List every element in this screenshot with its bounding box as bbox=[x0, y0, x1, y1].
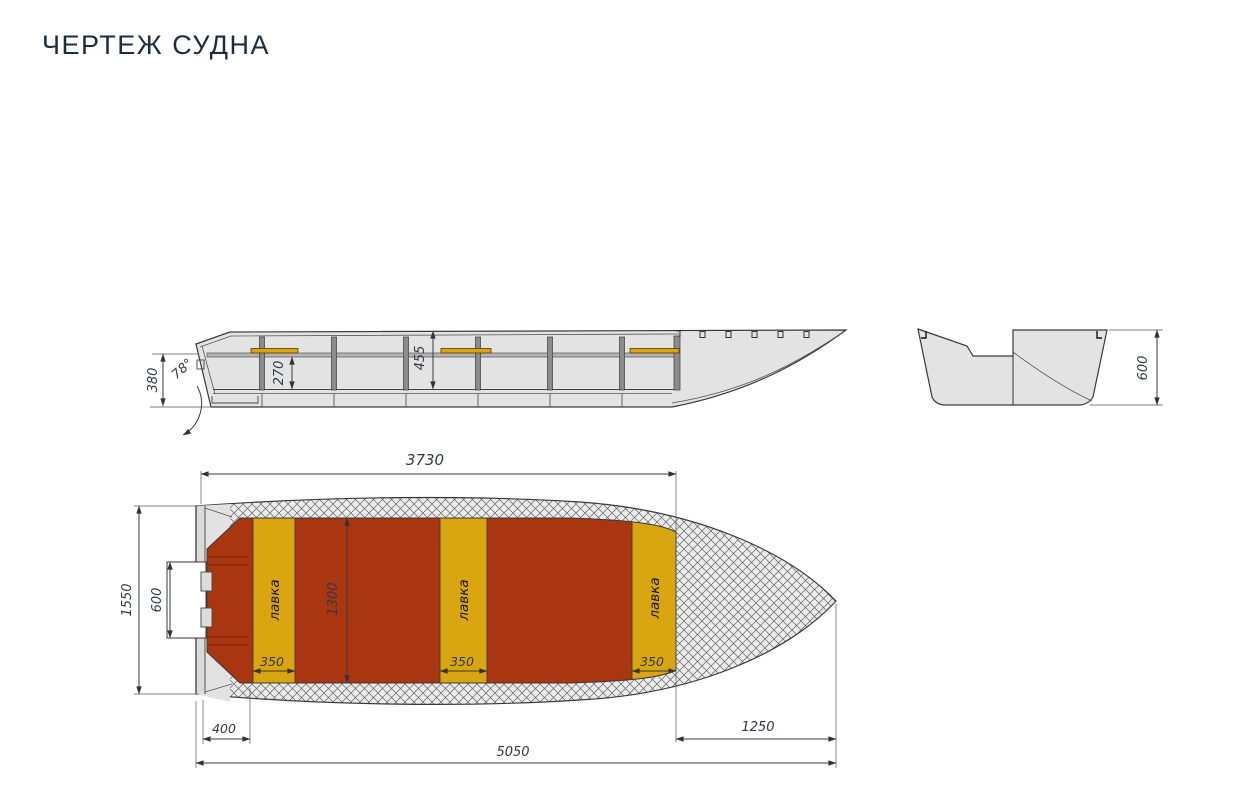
dim-transom-height: 380 bbox=[146, 368, 161, 393]
dim-floor-width: 1300 bbox=[326, 582, 341, 615]
dim-depth: 455 bbox=[413, 346, 428, 371]
side-view: 380 78° 270 455 bbox=[146, 330, 846, 435]
dim-bench-width: 350 bbox=[260, 654, 284, 669]
dim-section-height: 600 bbox=[1136, 356, 1151, 381]
dim-bench-width: 350 bbox=[450, 654, 474, 669]
bench-label: лавка bbox=[456, 579, 472, 621]
dim-cockpit-length: 3730 bbox=[406, 451, 444, 469]
dim-bench-width: 350 bbox=[640, 654, 664, 669]
dim-bow-section: 1250 bbox=[741, 720, 774, 735]
dim-motor-notch: 600 bbox=[150, 588, 165, 613]
bench-label: лавка bbox=[647, 577, 663, 619]
motor-clamp bbox=[201, 572, 212, 591]
dim-stern-section: 400 bbox=[212, 721, 236, 736]
section-view: 600 bbox=[918, 329, 1163, 405]
ship-drawing-canvas: 380 78° 270 455 600 bbox=[0, 0, 1233, 789]
top-view: лавка лавка лавка 3730 1550 600 1300 350… bbox=[120, 451, 836, 768]
bench-label: лавка bbox=[267, 579, 283, 621]
dim-transom-angle: 78° bbox=[169, 356, 196, 383]
motor-clamp bbox=[201, 608, 212, 627]
side-rail bbox=[207, 353, 677, 357]
drawing-page: ЧЕРТЕЖ СУДНА bbox=[0, 0, 1233, 789]
dim-overall-length: 5050 bbox=[496, 745, 529, 760]
dim-bench-height: 270 bbox=[272, 361, 287, 386]
dim-beam: 1550 bbox=[120, 583, 135, 616]
motor-notch bbox=[167, 562, 206, 638]
side-hull bbox=[196, 330, 846, 407]
